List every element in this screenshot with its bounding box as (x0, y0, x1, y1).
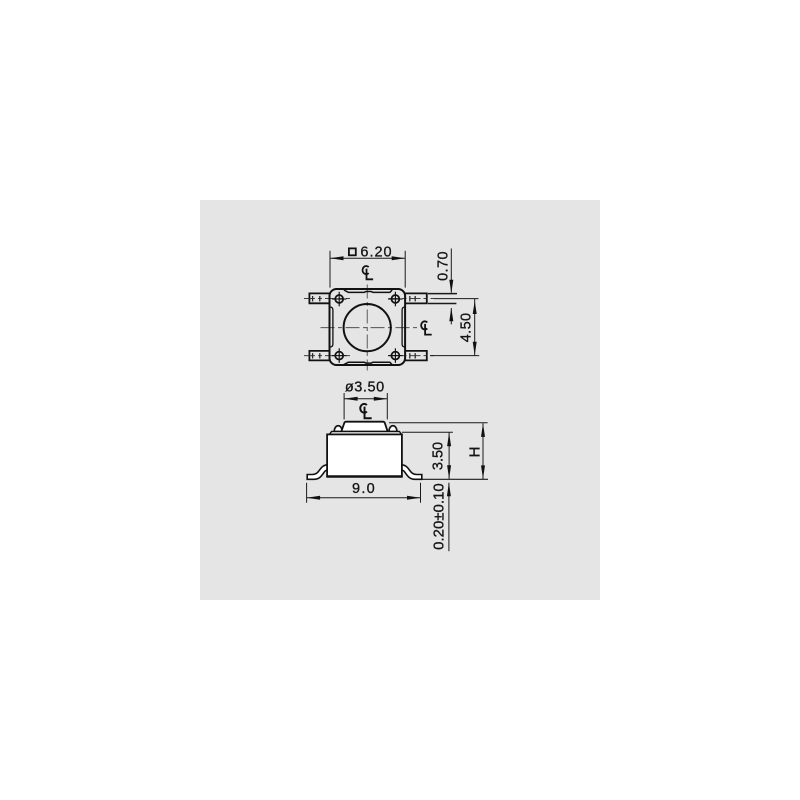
svg-text:3.50: 3.50 (430, 442, 446, 470)
svg-text:ø3.50: ø3.50 (345, 379, 385, 395)
svg-text:0.70: 0.70 (435, 251, 451, 281)
svg-text:9.0: 9.0 (352, 481, 376, 497)
svg-text:4.50: 4.50 (459, 312, 475, 342)
svg-text:H: H (466, 447, 483, 458)
svg-text:6.20: 6.20 (360, 244, 392, 260)
svg-text:0.20±0.10: 0.20±0.10 (430, 483, 447, 550)
